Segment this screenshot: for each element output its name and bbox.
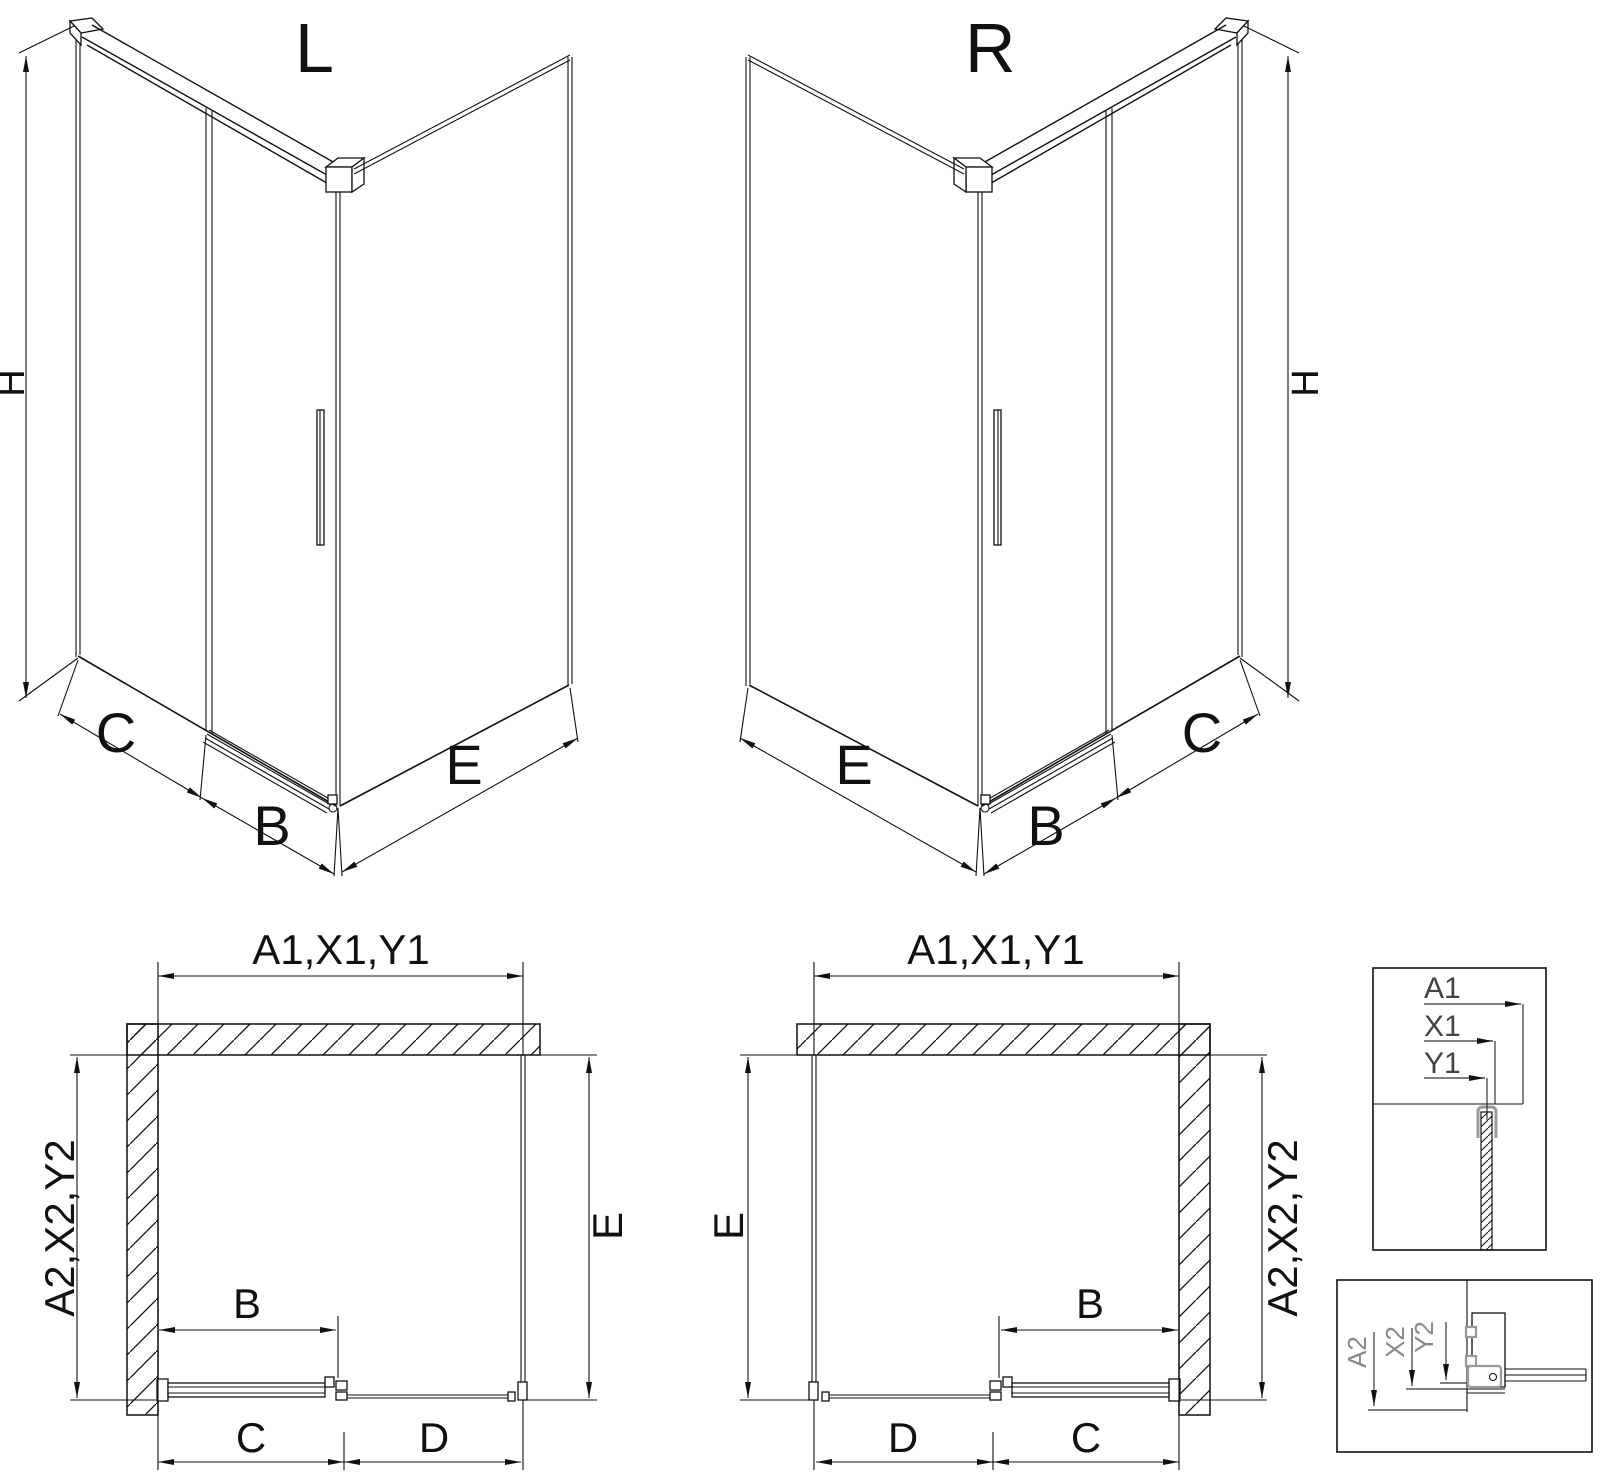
dim-label-a2: A2 (1342, 1336, 1372, 1368)
dim-label-left: E (705, 1212, 752, 1240)
dim-label-right: A2,X2,Y2 (1259, 1139, 1306, 1316)
plan-right-walls (797, 1024, 1210, 1415)
drawing-canvas: L (0, 0, 1600, 1474)
dim-label-a1: A1 (1424, 972, 1461, 1005)
plan-view-left: A1,X1,Y1 A2,X2,Y2 E B C D (36, 926, 631, 1470)
dim-label-fixed-panel: C (96, 701, 136, 764)
plan-right-dimensions: A1,X1,Y1 A2,X2,Y2 E B D C (705, 926, 1306, 1470)
dim-label-d: D (419, 1414, 449, 1461)
glass-section (1481, 1112, 1492, 1250)
iso-left-title: L (295, 9, 334, 87)
iso-view-left: L (0, 9, 578, 876)
dim-label-y1: Y1 (1424, 1047, 1461, 1080)
detail-view-bottom: Y2 X2 A2 (1337, 1280, 1592, 1452)
iso-right-dimensions: H E B C (740, 26, 1327, 876)
dim-label-x2: X2 (1380, 1326, 1410, 1358)
dim-label-door: B (233, 1280, 261, 1327)
dim-label-top: A1,X1,Y1 (907, 926, 1084, 973)
dim-label-side-panel: E (445, 733, 482, 796)
dim-label-door: B (253, 794, 290, 857)
detail-bottom-frame (1337, 1280, 1592, 1452)
detail-view-top: A1 X1 Y1 (1373, 968, 1546, 1250)
dim-label-door: B (1076, 1280, 1104, 1327)
iso-right-structure (746, 18, 1248, 813)
plan-view-right: A1,X1,Y1 A2,X2,Y2 E B D C (705, 926, 1306, 1470)
iso-view-right: R H E B (740, 9, 1327, 876)
dim-label-x1: X1 (1424, 1010, 1461, 1043)
dim-label-c: C (1071, 1414, 1101, 1461)
dim-label-d: D (888, 1414, 918, 1461)
iso-left-structure (70, 18, 572, 813)
plan-left-dimensions: A1,X1,Y1 A2,X2,Y2 E B C D (36, 926, 631, 1470)
dim-label-fixed-panel: C (1182, 701, 1222, 764)
dim-label-top: A1,X1,Y1 (252, 926, 429, 973)
dim-label-right: E (584, 1212, 631, 1240)
plan-left-walls (127, 1024, 540, 1415)
dim-label-left: A2,X2,Y2 (36, 1139, 83, 1316)
dim-label-c: C (236, 1414, 266, 1461)
detail-top-dimensions: A1 X1 Y1 (1424, 972, 1523, 1120)
detail-bottom-dimensions: Y2 X2 A2 (1342, 1321, 1468, 1410)
iso-right-title: R (965, 9, 1016, 87)
dim-label-height: H (1285, 369, 1327, 396)
dim-label-door: B (1027, 794, 1064, 857)
dim-label-height: H (0, 369, 33, 396)
shower-enclosure-technical-drawing: L (0, 0, 1600, 1474)
dim-label-side-panel: E (835, 733, 872, 796)
dim-label-y2: Y2 (1409, 1321, 1439, 1353)
